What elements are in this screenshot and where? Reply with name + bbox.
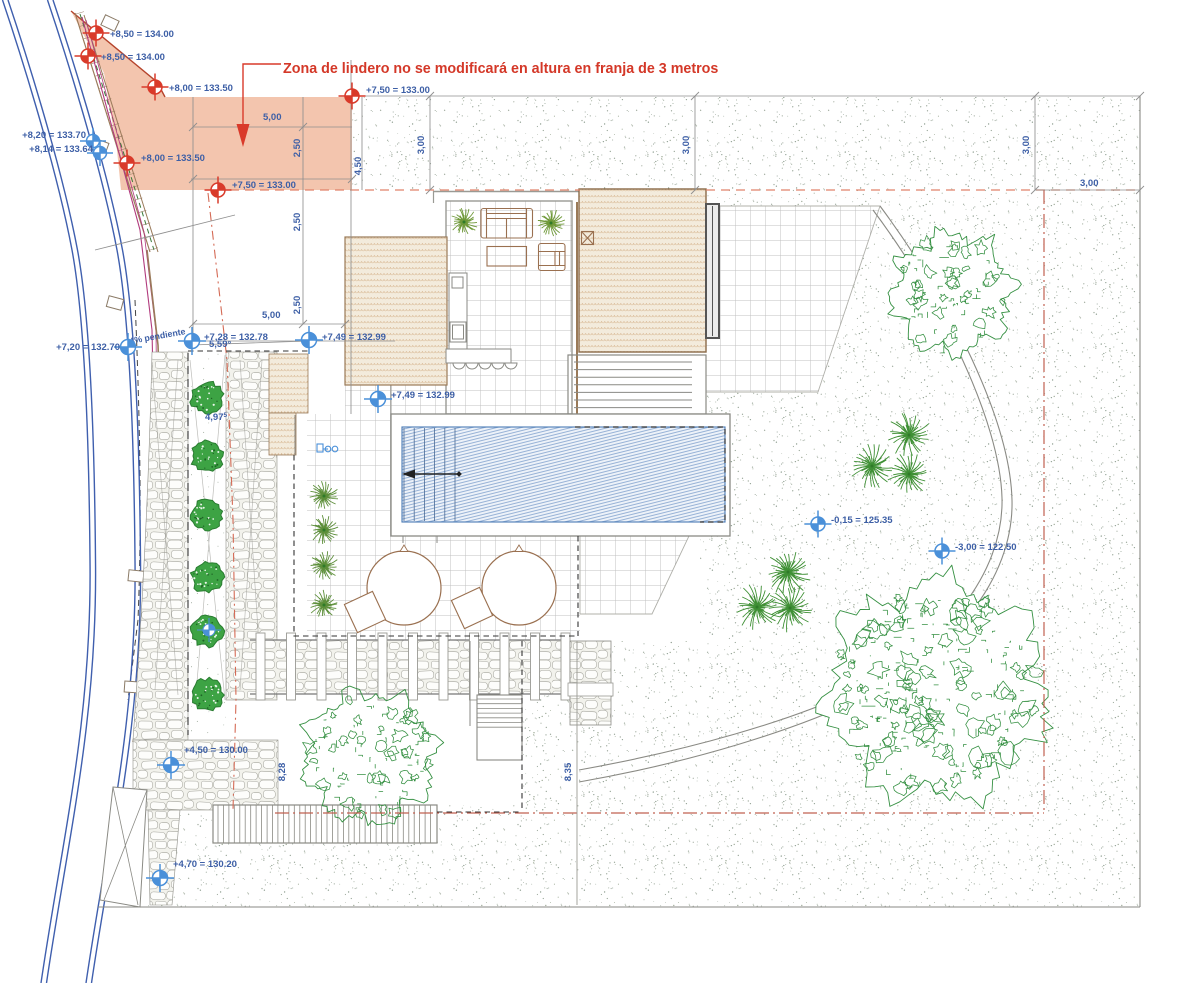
svg-text:+4,70 = 130.20: +4,70 = 130.20: [173, 859, 237, 870]
svg-text:-3,00 = 122.50: -3,00 = 122.50: [955, 542, 1017, 553]
svg-text:Zona de lindero no se modifica: Zona de lindero no se modificará en altu…: [283, 61, 718, 77]
svg-text:+8,20 = 133.70: +8,20 = 133.70: [22, 130, 86, 141]
svg-text:-0,15 = 125.35: -0,15 = 125.35: [831, 515, 893, 526]
svg-text:3,00: 3,00: [1021, 136, 1032, 155]
svg-text:+7,49 = 132.99: +7,49 = 132.99: [322, 332, 386, 343]
svg-text:2,50: 2,50: [292, 139, 303, 158]
svg-text:3,00: 3,00: [681, 136, 692, 155]
svg-text:+7,50 = 133.00: +7,50 = 133.00: [232, 180, 296, 191]
svg-text:+7,28 = 132.78: +7,28 = 132.78: [204, 332, 268, 343]
svg-text:4,50: 4,50: [353, 157, 364, 176]
svg-text:+8,00 = 133.50: +8,00 = 133.50: [169, 83, 233, 94]
svg-text:+8,14 = 133.64: +8,14 = 133.64: [29, 144, 94, 155]
svg-text:2,50: 2,50: [292, 296, 303, 315]
svg-text:+7,49 = 132.99: +7,49 = 132.99: [391, 390, 455, 401]
svg-text:8,35: 8,35: [563, 762, 574, 781]
svg-text:+4,50 = 130.00: +4,50 = 130.00: [184, 745, 248, 756]
svg-text:+8,00 = 133.50: +8,00 = 133.50: [141, 153, 205, 164]
svg-text:3,00: 3,00: [416, 136, 427, 155]
svg-text:5,00: 5,00: [262, 310, 281, 321]
svg-text:2,50: 2,50: [292, 213, 303, 232]
svg-text:8,28: 8,28: [277, 763, 288, 782]
svg-text:+7,20 = 132.70: +7,20 = 132.70: [56, 342, 120, 353]
svg-text:+8,50 = 134.00: +8,50 = 134.00: [101, 52, 165, 63]
svg-text:3,00: 3,00: [1080, 178, 1099, 189]
svg-text:+7,50 = 133.00: +7,50 = 133.00: [366, 85, 430, 96]
svg-text:+8,50 = 134.00: +8,50 = 134.00: [110, 29, 174, 40]
svg-text:5,00: 5,00: [263, 112, 282, 123]
